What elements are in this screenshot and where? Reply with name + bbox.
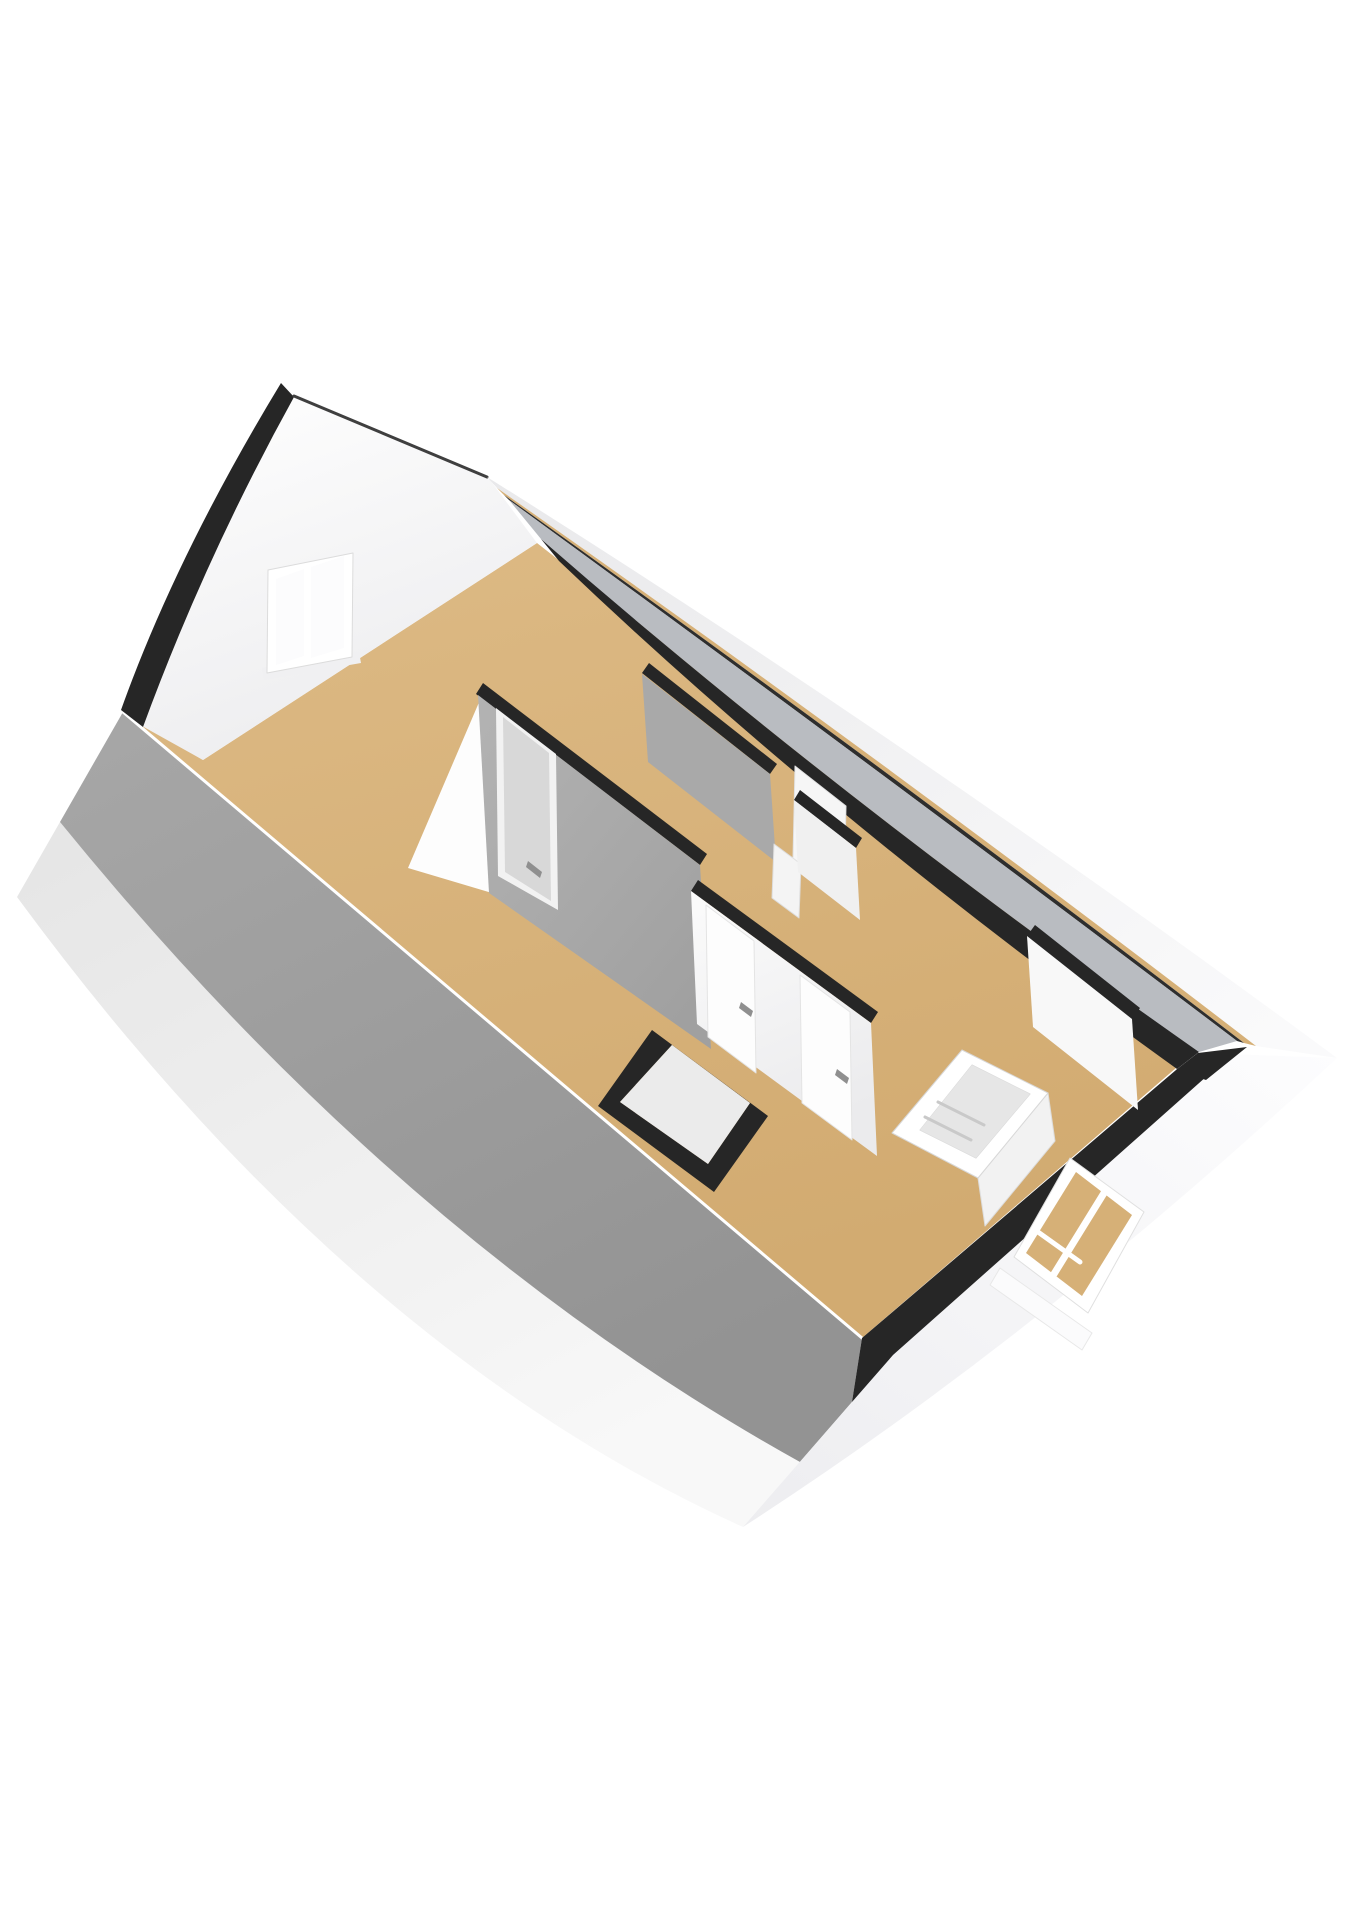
gable-window-pane-right [311,556,344,658]
floorplan-shapes [17,383,1337,1527]
floorplan-viewport [0,0,1358,1920]
gable-window-pane-left [276,569,304,665]
floorplan-canvas [0,0,1358,1920]
